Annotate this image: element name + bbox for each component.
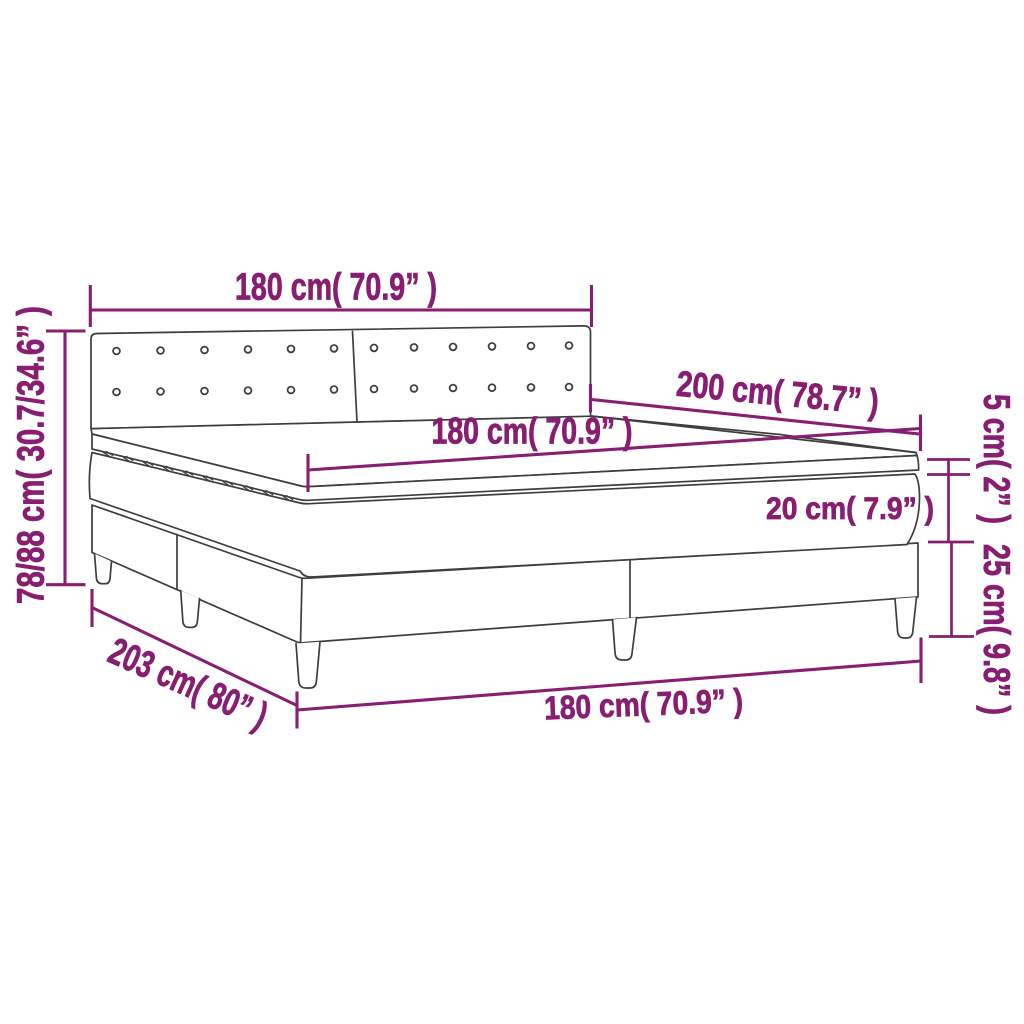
- svg-text:180 cm( 70.9” ): 180 cm( 70.9” ): [432, 411, 633, 452]
- svg-text:78/88 cm( 30.7/34.6” ): 78/88 cm( 30.7/34.6” ): [11, 306, 53, 604]
- svg-text:180 cm( 70.9” ): 180 cm( 70.9” ): [235, 267, 437, 309]
- svg-text:25 cm( 9.8” ): 25 cm( 9.8” ): [976, 544, 1017, 715]
- svg-text:5 cm( 2” ): 5 cm( 2” ): [976, 394, 1017, 524]
- svg-text:20 cm( 7.9” ): 20 cm( 7.9” ): [766, 490, 934, 526]
